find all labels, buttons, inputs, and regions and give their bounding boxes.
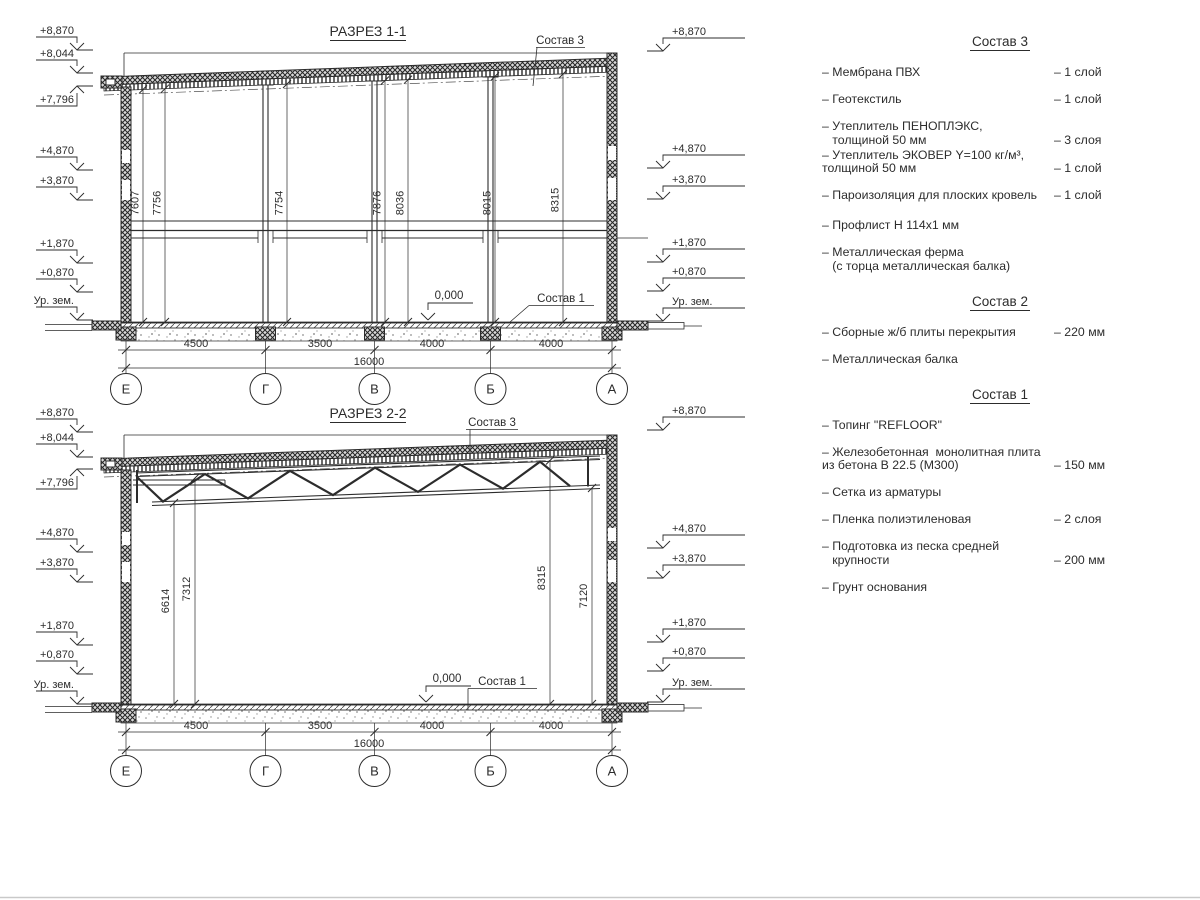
callout-sostav1: Состав 1 <box>478 676 526 688</box>
legend-item: – Железобетонная монолитная плита из бет… <box>822 446 1178 474</box>
legend-item: – Геотекстиль– 1 слой <box>822 93 1178 107</box>
level-mark: +0,870 <box>40 649 74 661</box>
legend-panel: Состав 3 – Мембрана ПВХ– 1 слой – Геотек… <box>822 34 1178 615</box>
span-4000a: 4000 <box>420 338 444 350</box>
axis-B: Б <box>486 382 495 397</box>
axis-V: В <box>370 382 379 397</box>
section1-bottom-dims: 4500 3500 4000 4000 16000 <box>118 338 621 374</box>
item-name: – Сетка из арматуры <box>822 486 1054 500</box>
level-mark: +4,870 <box>40 527 74 539</box>
section2-axes: Е Г В Б А <box>111 756 628 787</box>
level-mark: +4,870 <box>40 145 74 157</box>
level-mark: +7,796 <box>40 94 74 106</box>
level-mark: +1,870 <box>672 617 706 629</box>
item-name: – Металлическая ферма (с торца металличе… <box>822 246 1054 274</box>
item-name: – Пароизоляция для плоских кровель <box>822 189 1054 203</box>
dim-7312: 7312 <box>181 577 193 601</box>
level-mark: +8,044 <box>40 48 74 60</box>
axis-V: В <box>370 764 379 779</box>
level-mark: +1,870 <box>40 238 74 250</box>
dim-6614: 6614 <box>160 589 172 613</box>
item-name: – Утеплитель ЭКОВЕР Y=100 кг/м³, толщино… <box>822 149 1054 177</box>
legend-sostav3: Состав 3 – Мембрана ПВХ– 1 слой – Геотек… <box>822 34 1178 274</box>
section2-vertical-dims: 6614 7312 8315 7120 <box>160 457 596 709</box>
legend-item: – Грунт основания <box>822 581 1178 595</box>
dim-7756: 7756 <box>152 191 164 215</box>
section1-right-levels: +8,870 +4,870 +3,870 +1,870 +0,870 Ур. з… <box>647 26 745 321</box>
legend-item: – Профлист Н 114х1 мм <box>822 219 1178 233</box>
legend-sostav3-title: Состав 3 <box>822 34 1178 49</box>
legend-title-text: Состав 3 <box>970 34 1030 51</box>
legend-item: – Подготовка из песка средней крупности–… <box>822 540 1178 568</box>
axis-E: Е <box>122 764 131 779</box>
item-qty: – 3 слоя <box>1054 134 1174 148</box>
level-mark: +1,870 <box>40 620 74 632</box>
span-4000a: 4000 <box>420 720 444 732</box>
legend-title-text: Состав 1 <box>970 387 1030 404</box>
item-name: – Сборные ж/б плиты перекрытия <box>822 326 1054 340</box>
level-mark: +4,870 <box>672 523 706 535</box>
section1-callouts: Состав 3 Состав 1 <box>510 35 594 322</box>
section2-left-levels: +8,870 +8,044 +7,796 +4,870 +3,870 +1,87… <box>34 407 93 704</box>
item-qty: – 200 мм <box>1054 554 1174 568</box>
item-name: – Утеплитель ПЕНОПЛЭКС, толщиной 50 мм <box>822 120 1054 148</box>
section-1-1: РАЗРЕЗ 1-1 <box>34 23 745 405</box>
item-name: – Пленка полиэтиленовая <box>822 513 1054 527</box>
legend-item: – Металлическая ферма (с торца металличе… <box>822 246 1178 274</box>
axis-G: Г <box>262 382 269 397</box>
span-3500: 3500 <box>308 720 332 732</box>
item-qty: – 220 мм <box>1054 326 1174 340</box>
legend-item: – Топинг "REFLOOR" <box>822 419 1178 433</box>
span-4000b: 4000 <box>539 720 563 732</box>
section-2-2: РАЗРЕЗ 2-2 <box>34 405 745 787</box>
level-mark: Ур. зем. <box>34 679 74 691</box>
legend-sostav1: Состав 1 – Топинг "REFLOOR" – Железобето… <box>822 387 1178 595</box>
legend-item: – Пароизоляция для плоских кровель– 1 сл… <box>822 189 1178 203</box>
callout-sostav3: Состав 3 <box>536 35 584 47</box>
level-mark: +3,870 <box>672 174 706 186</box>
section1-floor <box>45 321 702 341</box>
zero-level-label: 0,000 <box>435 290 464 302</box>
level-mark: +8,870 <box>40 25 74 37</box>
section2-zero-level: 0,000 <box>419 673 471 702</box>
level-mark: +8,044 <box>40 432 74 444</box>
legend-item: – Сетка из арматуры <box>822 486 1178 500</box>
axis-A: А <box>608 764 617 779</box>
level-mark: +0,870 <box>672 266 706 278</box>
span-3500: 3500 <box>308 338 332 350</box>
section1-beams <box>131 221 648 243</box>
section1-roof <box>101 58 614 95</box>
legend-item: – Пленка полиэтиленовая– 2 слоя <box>822 513 1178 527</box>
span-4000b: 4000 <box>539 338 563 350</box>
item-qty: – 1 слой <box>1054 162 1174 176</box>
dim-8315: 8315 <box>536 566 548 590</box>
legend-sostav2-title: Состав 2 <box>822 294 1178 309</box>
item-name: – Железобетонная монолитная плита из бет… <box>822 446 1054 474</box>
zero-level-label: 0,000 <box>433 673 462 685</box>
dim-8015: 8015 <box>482 191 494 215</box>
dim-8036: 8036 <box>395 191 407 215</box>
legend-item: – Утеплитель ПЕНОПЛЭКС, толщиной 50 мм– … <box>822 120 1178 148</box>
span-4500: 4500 <box>184 338 208 350</box>
section1-left-levels: +8,870 +8,044 +7,796 +4,870 +3,870 +1,87… <box>34 25 93 320</box>
legend-item: – Мембрана ПВХ– 1 слой <box>822 66 1178 80</box>
dim-7120: 7120 <box>578 584 590 608</box>
item-qty: – 1 слой <box>1054 189 1174 203</box>
item-qty: – 150 мм <box>1054 459 1174 473</box>
item-name: – Топинг "REFLOOR" <box>822 419 1054 433</box>
level-mark: Ур. зем. <box>34 295 74 307</box>
total-16000: 16000 <box>354 356 385 368</box>
section2-right-levels: +8,870 +4,870 +3,870 +1,870 +0,870 Ур. з… <box>647 405 745 702</box>
level-mark: +3,870 <box>40 175 74 187</box>
level-mark: +8,870 <box>672 405 706 417</box>
section1-zero-level: 0,000 <box>421 290 473 320</box>
dim-7876: 7876 <box>372 191 384 215</box>
level-mark: +0,870 <box>40 267 74 279</box>
section2-bottom-dims: 4500 3500 4000 4000 16000 <box>118 720 621 756</box>
level-mark: +0,870 <box>672 646 706 658</box>
axis-B: Б <box>486 764 495 779</box>
item-qty: – 2 слоя <box>1054 513 1174 527</box>
legend-sostav1-title: Состав 1 <box>822 387 1178 402</box>
level-mark: +3,870 <box>40 557 74 569</box>
item-qty: – 1 слой <box>1054 66 1174 80</box>
item-name: – Подготовка из песка средней крупности <box>822 540 1054 568</box>
level-mark: +7,796 <box>40 477 74 489</box>
item-qty: – 1 слой <box>1054 93 1174 107</box>
legend-item: – Сборные ж/б плиты перекрытия– 220 мм <box>822 326 1178 340</box>
item-name: – Геотекстиль <box>822 93 1054 107</box>
section2-floor <box>45 703 702 723</box>
level-mark: +3,870 <box>672 553 706 565</box>
legend-title-text: Состав 2 <box>970 294 1030 311</box>
legend-sostav2: Состав 2 – Сборные ж/б плиты перекрытия–… <box>822 294 1178 367</box>
section1-title: РАЗРЕЗ 1-1 <box>330 23 407 39</box>
axis-G: Г <box>262 764 269 779</box>
axis-E: Е <box>122 382 131 397</box>
section1-vertical-dims: 7607 7756 7754 7876 8036 8015 8315 <box>130 70 568 326</box>
item-name: – Металлическая балка <box>822 353 1054 367</box>
section1-axes: Е Г В Б А <box>111 374 628 405</box>
legend-item: – Утеплитель ЭКОВЕР Y=100 кг/м³, толщино… <box>822 149 1178 177</box>
section2-title: РАЗРЕЗ 2-2 <box>330 405 407 421</box>
level-mark: Ур. зем. <box>672 677 712 689</box>
axis-A: А <box>608 382 617 397</box>
span-4500: 4500 <box>184 720 208 732</box>
callout-sostav1: Состав 1 <box>537 293 585 305</box>
total-16000: 16000 <box>354 738 385 750</box>
level-mark: +8,870 <box>672 26 706 38</box>
legend-item: – Металлическая балка <box>822 353 1178 367</box>
callout-sostav3: Состав 3 <box>468 417 516 429</box>
level-mark: +8,870 <box>40 407 74 419</box>
item-name: – Профлист Н 114х1 мм <box>822 219 1054 233</box>
dim-7754: 7754 <box>274 191 286 215</box>
level-mark: +4,870 <box>672 143 706 155</box>
dim-8315: 8315 <box>550 188 562 212</box>
dim-7607: 7607 <box>130 191 142 215</box>
level-mark: +1,870 <box>672 237 706 249</box>
drawing-sheet: РАЗРЕЗ 1-1 <box>0 0 1200 900</box>
section1-walls <box>121 53 617 323</box>
level-mark: Ур. зем. <box>672 296 712 308</box>
item-name: – Мембрана ПВХ <box>822 66 1054 80</box>
item-name: – Грунт основания <box>822 581 1054 595</box>
